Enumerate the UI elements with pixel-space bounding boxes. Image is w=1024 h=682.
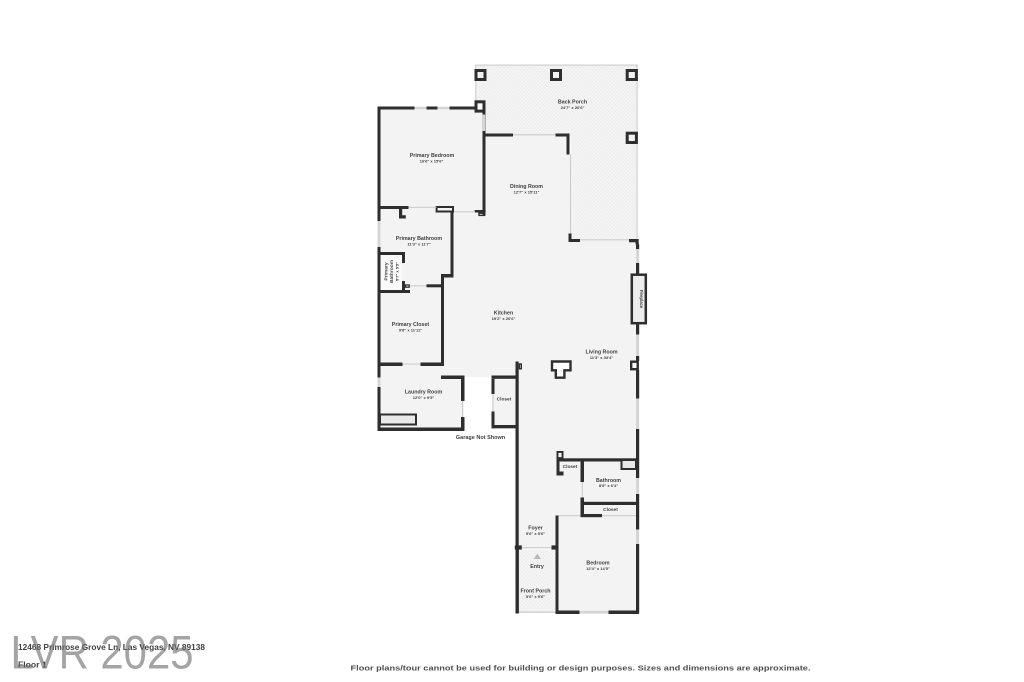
svg-text:8'5" x 6'4": 8'5" x 6'4" xyxy=(599,483,618,488)
svg-text:5'6" x 9'6": 5'6" x 9'6" xyxy=(526,594,545,599)
svg-text:Closet: Closet xyxy=(497,397,512,403)
svg-text:LVR 2025: LVR 2025 xyxy=(11,626,194,679)
svg-text:Primary: Primary xyxy=(384,262,390,280)
svg-text:Closet: Closet xyxy=(603,507,618,513)
svg-text:11'3" x 11'7": 11'3" x 11'7" xyxy=(407,242,430,247)
svg-text:Fireplace: Fireplace xyxy=(639,290,644,309)
svg-text:Closet: Closet xyxy=(563,464,578,470)
svg-text:12'0" x 9'5": 12'0" x 9'5" xyxy=(413,395,435,400)
svg-text:Entry: Entry xyxy=(530,564,544,570)
svg-text:11'3" x 33'4": 11'3" x 33'4" xyxy=(590,355,614,360)
svg-text:5'6" x 5'6": 5'6" x 5'6" xyxy=(526,531,545,536)
svg-text:12'4" x 14'5": 12'4" x 14'5" xyxy=(586,566,610,571)
svg-text:19'2" x 26'6": 19'2" x 26'6" xyxy=(492,316,516,321)
svg-text:Garage Not Shown: Garage Not Shown xyxy=(456,435,506,441)
svg-text:16'6" x 15'6": 16'6" x 15'6" xyxy=(420,159,444,164)
svg-text:Floor plans/tour cannot be use: Floor plans/tour cannot be used for buil… xyxy=(351,664,811,673)
svg-text:9'8" x 11'11": 9'8" x 11'11" xyxy=(399,328,422,333)
svg-text:24'7" x 26'6": 24'7" x 26'6" xyxy=(561,105,585,110)
svg-text:5'7" x 5'5": 5'7" x 5'5" xyxy=(395,262,400,281)
svg-text:12'7" x 15'11": 12'7" x 15'11" xyxy=(514,190,540,195)
